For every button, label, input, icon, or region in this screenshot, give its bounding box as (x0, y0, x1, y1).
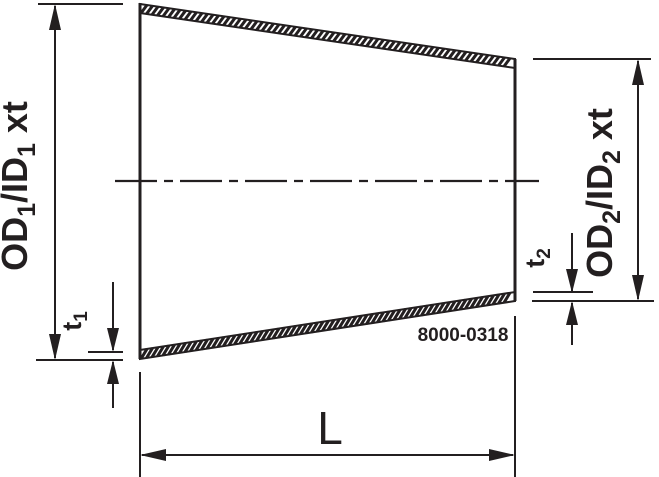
dimension-t1: t1 (57, 282, 123, 408)
od2-arrow-down-icon (632, 275, 644, 301)
technical-drawing-reducer: OD1/ID1 xt t1 OD2/ID2 xt t2 L 8000- (0, 0, 659, 477)
drawing-number: 8000-0318 (418, 325, 509, 346)
length-label: L (317, 402, 343, 454)
reducer-drawing-svg: OD1/ID1 xt t1 OD2/ID2 xt t2 L 8000- (0, 0, 659, 477)
l-arrow-right-icon (489, 449, 515, 461)
od2-arrow-up-icon (632, 59, 644, 85)
t1-arrow-up-icon (107, 360, 119, 384)
top-wall-hatch-lines (141, 5, 510, 66)
od2-id2-label: OD2/ID2 xt (579, 108, 626, 278)
t2-label: t2 (520, 248, 555, 268)
t2-arrow-up-icon (566, 301, 578, 325)
dimension-od2: OD2/ID2 xt (532, 59, 654, 301)
t2-arrow-down-icon (566, 269, 578, 293)
od1-arrow-up-icon (49, 4, 61, 30)
od1-id1-label: OD1/ID1 xt (0, 101, 41, 271)
od1-arrow-down-icon (49, 334, 61, 360)
t1-arrow-down-icon (107, 328, 119, 352)
l-arrow-left-icon (140, 449, 166, 461)
dimension-od1: OD1/ID1 xt (0, 4, 123, 360)
t1-label: t1 (57, 311, 92, 331)
